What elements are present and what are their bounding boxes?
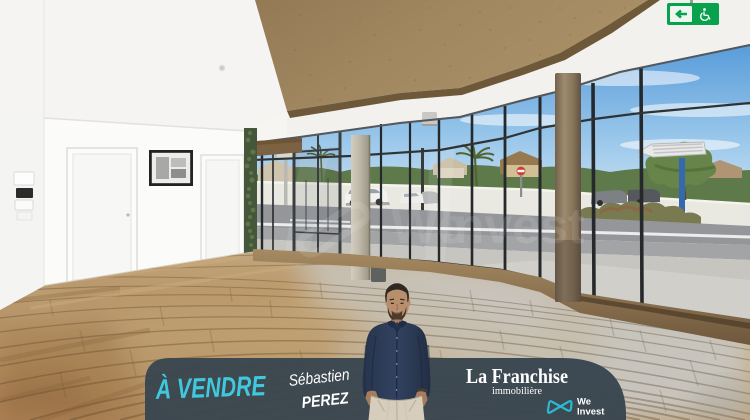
svg-text:Invest: Invest <box>577 407 605 418</box>
svg-text:La Franchise: La Franchise <box>466 364 568 388</box>
svg-text:À VENDRE: À VENDRE <box>154 370 267 405</box>
svg-text:immobilière: immobilière <box>492 386 543 397</box>
svg-text:We: We <box>391 198 465 254</box>
